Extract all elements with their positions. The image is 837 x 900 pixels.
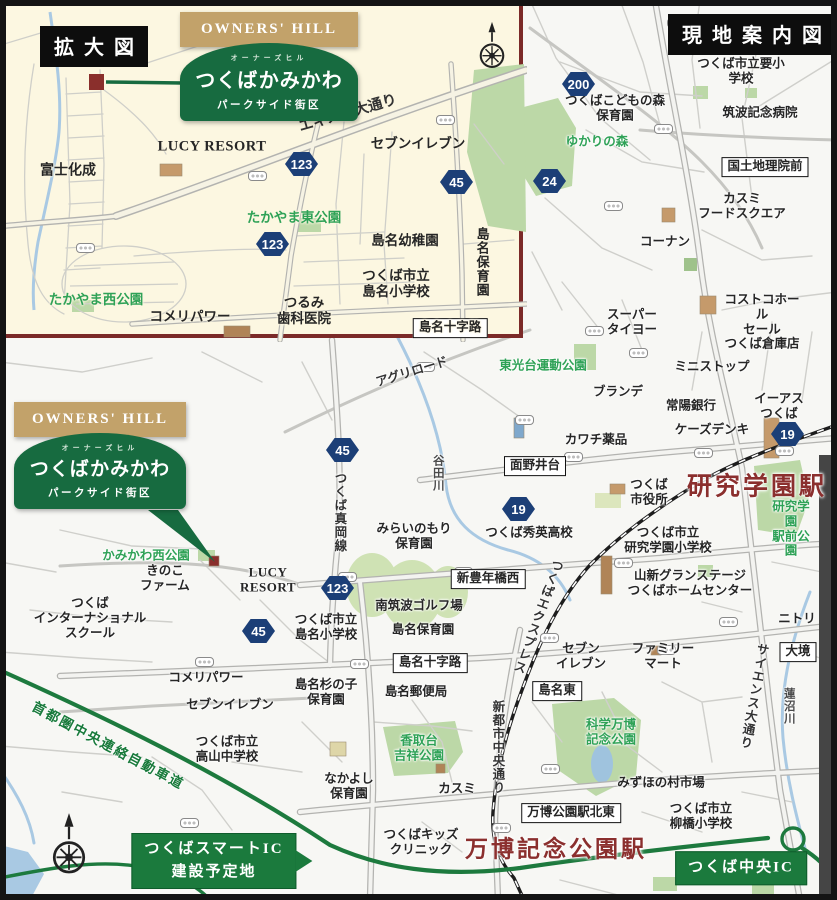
- logo-name: つくばかみかわ: [184, 64, 354, 93]
- map-label: 富士化成: [40, 164, 96, 181]
- signal-icon: [515, 415, 534, 425]
- signal-icon: [719, 617, 738, 627]
- map-label: コーナン: [640, 235, 690, 250]
- owners-hill-logo-main: OWNERS' HILL オーナーズヒル つくばかみかわ パークサイド街区: [14, 402, 186, 509]
- map-label: みらいのもり 保育園: [376, 521, 451, 551]
- map-label: カワチ薬品: [565, 433, 628, 448]
- boxed-label: 新豊年橋西: [451, 569, 526, 589]
- road-label: 新都市中央通り: [490, 700, 505, 795]
- map-label: ファミリー マート: [632, 641, 695, 671]
- map-label: 島名郵便局: [385, 685, 448, 700]
- compass-icon: [479, 18, 505, 76]
- map-label: スーパー タイヨー: [607, 307, 657, 337]
- map-label: つるみ 歯科医院: [277, 295, 331, 327]
- signal-icon: [629, 348, 648, 358]
- map-label: なかよし 保育園: [324, 771, 373, 801]
- logo-subtitle: パークサイド街区: [18, 485, 182, 500]
- signal-icon: [775, 446, 794, 456]
- boxed-label: 島名十字路: [393, 653, 468, 673]
- map-label: つくば市立 島名小学校: [295, 612, 358, 642]
- signal-icon: [195, 657, 214, 667]
- boxed-label: 国土地理院前: [721, 157, 808, 177]
- map-label: つくば秀英高校: [485, 526, 573, 541]
- map-label: ニトリ: [778, 612, 816, 627]
- logo-arch: オーナーズヒル つくばかみかわ パークサイド街区: [14, 433, 186, 509]
- park-label: 東光台運動公園: [499, 359, 587, 374]
- logo-ruby: オーナーズヒル: [18, 443, 182, 453]
- map-page: 現地案内図 OWNERS' HILL オーナーズヒル つくばかみかわ パークサイ…: [0, 0, 837, 900]
- park-label: たかやま東公園: [247, 210, 342, 226]
- map-label: つくば市立 高山中学校: [196, 734, 259, 764]
- park-label: ゆかりの森: [566, 135, 629, 150]
- map-label: LUCY RESORT: [240, 565, 296, 596]
- map-label: セブンイレブン: [186, 698, 274, 713]
- logo-arch: オーナーズヒル つくばかみかわ パークサイド街区: [180, 43, 358, 121]
- signal-icon: [436, 115, 455, 125]
- signal-icon: [76, 243, 95, 253]
- map-label: コメリパワー: [150, 309, 231, 325]
- main-map-title: 現地案内図: [668, 14, 836, 55]
- logo-name: つくばかみかわ: [18, 454, 182, 481]
- map-label: イーアス つくば: [754, 391, 804, 421]
- map-label: 島名保育園: [474, 227, 489, 297]
- map-label: ミニストップ: [674, 360, 749, 375]
- map-label: セブンイレブン: [371, 136, 466, 152]
- signal-icon: [350, 659, 369, 669]
- park-label: 研究学園 駅前公園: [768, 500, 814, 559]
- signal-icon: [585, 326, 604, 336]
- map-label: コストコホール セール つくば倉庫店: [725, 293, 800, 352]
- map-label: 蓮沼川: [781, 687, 795, 725]
- map-label: 島名保育園: [392, 623, 455, 638]
- boxed-label: 大境: [779, 642, 816, 662]
- green-callout: つくば中央IC: [675, 851, 807, 885]
- map-label: 山新グランステージ つくばホームセンター: [628, 568, 753, 598]
- map-label: つくばこどもの森 保育園: [565, 93, 665, 123]
- map-label: つくば市立要小学校: [693, 56, 789, 86]
- boxed-label: 島名東: [532, 681, 582, 701]
- boxed-label: 万博公園駅北東: [521, 803, 621, 823]
- site-marker: [89, 74, 104, 90]
- signal-icon: [541, 764, 560, 774]
- boxed-label: 面野井台: [504, 456, 566, 476]
- station-label: 研究学園駅: [687, 472, 827, 502]
- signal-icon: [694, 448, 713, 458]
- signal-icon: [180, 818, 199, 828]
- map-label: 島名幼稚園: [371, 233, 439, 249]
- logo-brand: OWNERS' HILL: [180, 12, 358, 47]
- signal-icon: [492, 823, 511, 833]
- map-label: 筑波記念病院: [722, 106, 797, 121]
- map-label: 常陽銀行: [666, 399, 716, 414]
- map-label: つくば市立 柳橋小学校: [670, 801, 733, 831]
- logo-subtitle: パークサイド街区: [184, 97, 354, 112]
- map-label: 谷田川: [430, 454, 444, 492]
- signal-icon: [614, 558, 633, 568]
- map-label: つくば市立 研究学園小学校: [624, 525, 712, 555]
- map-label: 島名杉の子 保育園: [295, 677, 358, 707]
- logo-brand: OWNERS' HILL: [14, 402, 186, 437]
- compass-icon: [52, 810, 86, 882]
- park-label: たかやま西公園: [49, 292, 144, 308]
- map-label: カスミ: [438, 782, 476, 797]
- signal-icon: [564, 452, 583, 462]
- map-label: セブン イレブン: [556, 641, 606, 671]
- map-label: つくばキッズ クリニック: [383, 827, 458, 857]
- map-label: 南筑波ゴルフ場: [375, 599, 463, 614]
- map-label: ケーズデンキ: [675, 423, 749, 438]
- park-label: 香取台 吉祥公園: [394, 733, 444, 763]
- green-callout: つくばスマートIC 建設予定地: [131, 833, 296, 889]
- owners-hill-logo-inset: OWNERS' HILL オーナーズヒル つくばかみかわ パークサイド街区: [180, 12, 358, 121]
- map-label: つくば 市役所: [630, 477, 668, 507]
- map-edge-strip: [819, 455, 832, 895]
- station-label: 万博記念公園駅: [465, 835, 647, 862]
- logo-ruby: オーナーズヒル: [184, 53, 354, 63]
- map-label: つくば インターナショナル スクール: [34, 596, 147, 640]
- signal-icon: [248, 171, 267, 181]
- inset-map: 拡大図 OWNERS' HILL オーナーズヒル つくばかみかわ パークサイド街…: [0, 0, 523, 338]
- road-label: つくば真岡線: [332, 472, 347, 553]
- map-label: きのこ ファーム: [140, 563, 190, 593]
- map-label: ブランデ: [593, 385, 643, 400]
- map-label: みずほの村市場: [617, 776, 705, 791]
- map-label: LUCY RESORT: [158, 138, 267, 155]
- boxed-label: 島名十字路: [413, 318, 488, 338]
- signal-icon: [604, 201, 623, 211]
- park-label: 科学万博 記念公園: [586, 717, 636, 747]
- inset-map-title: 拡大図: [40, 26, 148, 67]
- map-label: コメリパワー: [168, 671, 243, 686]
- map-label: カスミ フードスクエア: [698, 191, 786, 221]
- signal-icon: [654, 124, 673, 134]
- map-label: つくば市立 島名小学校: [362, 268, 430, 300]
- park-label: かみかわ西公園: [102, 549, 190, 564]
